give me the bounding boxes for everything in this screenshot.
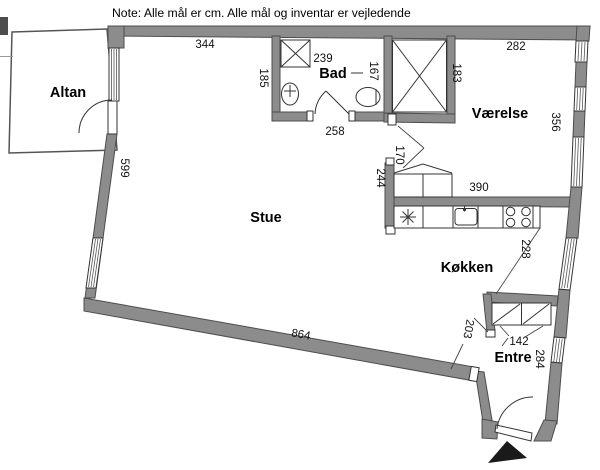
koekken-window-icon — [559, 238, 577, 290]
dim-244: 244 — [374, 168, 386, 188]
dim-183: 183 — [450, 63, 462, 82]
wall-top-left-corner — [108, 26, 124, 48]
bath-sink-icon — [282, 83, 299, 105]
wall-top — [110, 26, 590, 40]
vaerelse-window-2-icon — [574, 87, 586, 111]
bath-door-jamb-right — [349, 111, 355, 121]
dim-390: 390 — [469, 182, 488, 194]
room-label-koekken: Køkken — [441, 260, 493, 276]
wall-bath-bottom-a — [272, 112, 310, 121]
dim-185: 185 — [257, 68, 269, 87]
leader-142-a — [500, 326, 509, 336]
vaerelse-window-1-icon — [575, 41, 588, 62]
room-label-stue: Stue — [250, 210, 281, 226]
dim-228: 228 — [519, 239, 531, 258]
wall-bath-left — [272, 36, 280, 114]
entrance-door-icon — [495, 397, 533, 441]
dim-203: 203 — [460, 318, 475, 339]
vaerelse-window-3-icon — [571, 137, 584, 187]
stue-left-window-icon — [86, 238, 103, 288]
dim-599: 599 — [118, 158, 130, 177]
wall-right-bottom-corner — [534, 420, 557, 441]
balcony-window-icon — [109, 48, 119, 101]
entrance-arrow-icon — [488, 441, 527, 463]
bottom-wall-jamb — [469, 366, 479, 381]
closet-bottom-jamb — [388, 114, 396, 125]
dim-170: 170 — [393, 145, 405, 164]
toilet-icon — [356, 88, 380, 107]
room-label-altan: Altan — [50, 85, 86, 101]
dim-284: 284 — [533, 349, 545, 369]
note-text: Note: Alle mål er cm. Alle mål og invent… — [112, 6, 411, 20]
kitchen-sink-icon — [455, 207, 477, 226]
closet-icon — [393, 40, 447, 112]
koekken-wall-cap-top — [386, 158, 394, 165]
shower-icon — [281, 40, 310, 67]
wall-right-3 — [573, 111, 585, 137]
kitchen-counter — [394, 206, 540, 228]
neighbor-wall-stub — [0, 17, 8, 35]
room-label-vaerelse: Værelse — [472, 106, 528, 122]
fixtures — [281, 40, 551, 325]
dim-282: 282 — [506, 41, 525, 53]
wall-right-4 — [566, 187, 582, 238]
dim-258: 258 — [325, 126, 344, 138]
walls — [84, 26, 590, 441]
dim-239: 239 — [313, 53, 332, 65]
floor-plan: Note: Alle mål er cm. Alle mål og invent… — [0, 0, 600, 470]
wall-right-1 — [576, 26, 590, 41]
wall-bottom — [84, 298, 474, 381]
bath-door-jamb-left — [307, 111, 313, 121]
entre-window-icon — [551, 337, 565, 363]
leader-142-tick — [502, 338, 508, 346]
wall-right-2 — [575, 62, 587, 87]
dim-142: 142 — [509, 336, 528, 348]
vaerelse-wardrobe-icon — [394, 164, 452, 197]
dim-line-228 — [496, 228, 540, 294]
dim-167: 167 — [367, 61, 379, 80]
wall-closet-left — [384, 36, 392, 116]
bath-door-icon — [315, 91, 349, 114]
dim-344: 344 — [195, 39, 215, 51]
floor-plan-canvas: Note: Alle mål er cm. Alle mål og invent… — [0, 0, 600, 470]
dim-356: 356 — [549, 112, 561, 131]
wall-right-6 — [545, 362, 562, 424]
entre-wardrobe-icon — [492, 303, 551, 325]
room-label-bad: Bad — [319, 66, 346, 82]
room-label-entre: Entre — [494, 350, 531, 366]
